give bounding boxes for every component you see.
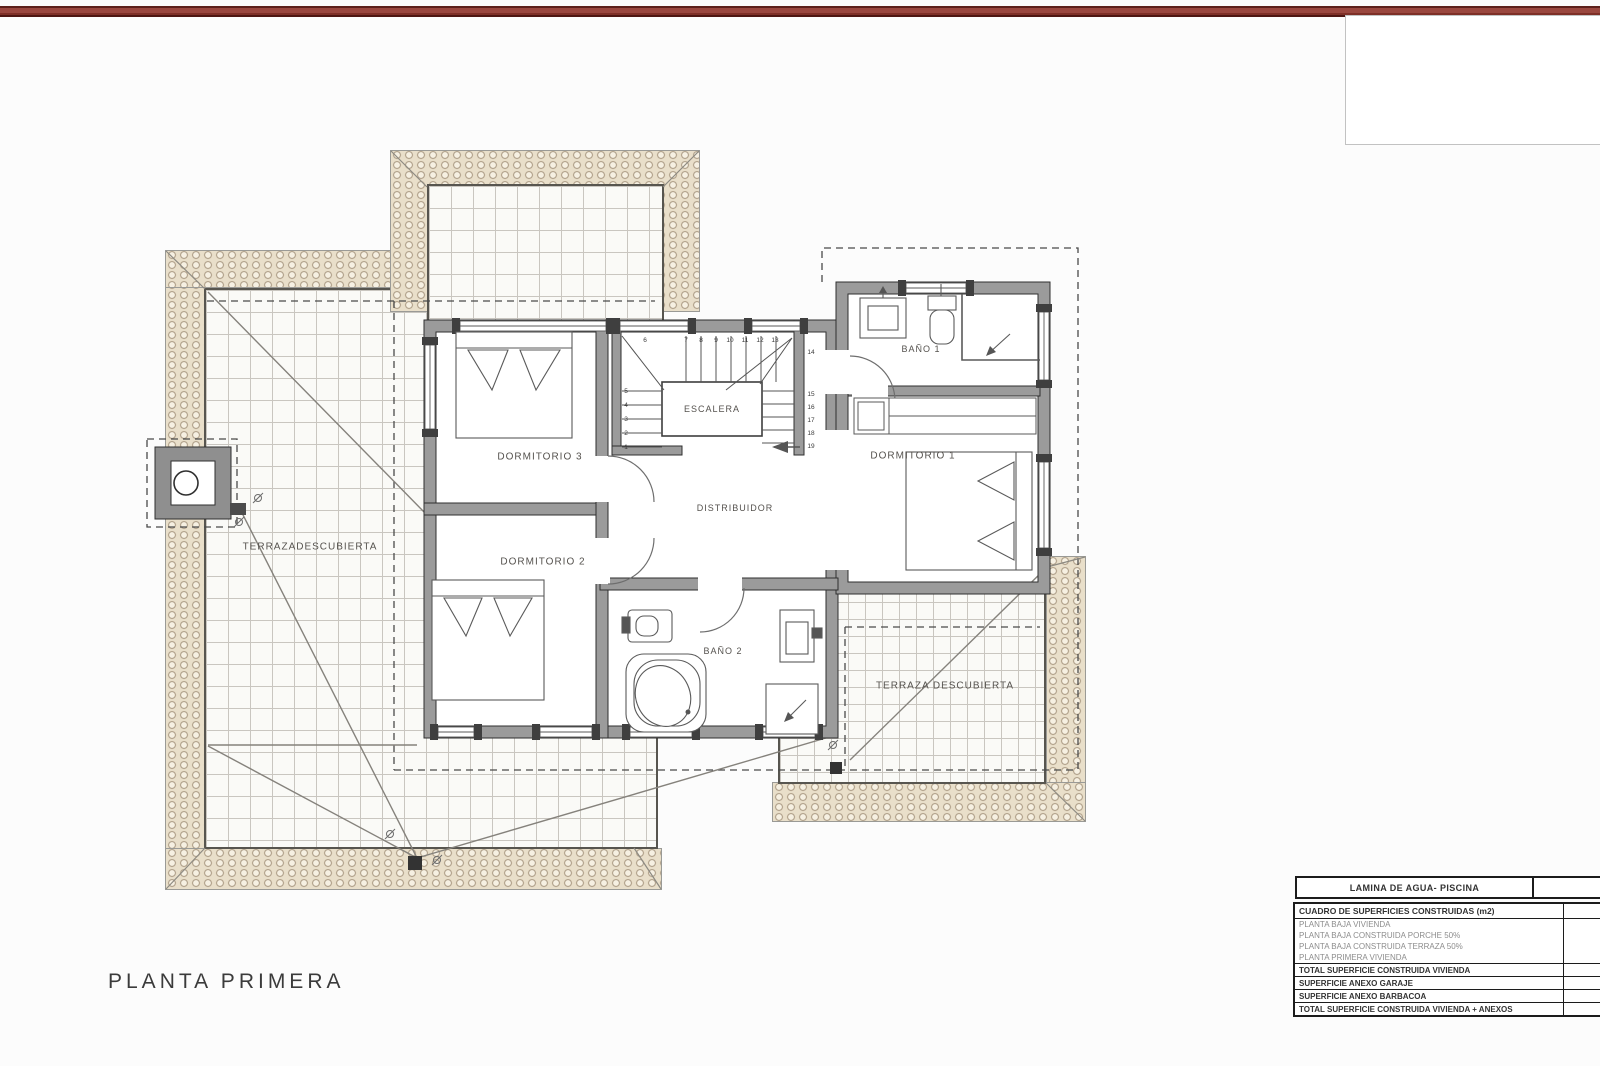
superficies-row: PLANTA BAJA CONSTRUIDA TERRAZA 50% <box>1295 941 1600 952</box>
lamina-value-cell <box>1534 878 1600 897</box>
closet-dormitorio-1 <box>854 398 1036 434</box>
svg-text:15: 15 <box>807 391 815 398</box>
svg-text:14: 14 <box>807 349 815 356</box>
superficies-row-value <box>1564 964 1600 976</box>
bed-dormitorio-1 <box>906 452 1032 570</box>
sheet-title: PLANTA PRIMERA <box>108 970 345 994</box>
superficies-table: CUADRO DE SUPERFICIES CONSTRUIDAS (m2) P… <box>1293 902 1600 1017</box>
label-bano-1: BAÑO 1 <box>901 344 940 354</box>
superficies-header-label: CUADRO DE SUPERFICIES CONSTRUIDAS (m2) <box>1295 904 1564 918</box>
roof-ridge-lines <box>208 292 1046 858</box>
bed-dormitorio-3 <box>456 332 572 438</box>
superficies-row-label: PLANTA BAJA CONSTRUIDA PORCHE 50% <box>1295 930 1564 941</box>
superficies-row: PLANTA PRIMERA VIVIENDA <box>1295 952 1600 963</box>
superficies-row-value <box>1564 941 1600 952</box>
superficies-row: PLANTA BAJA VIVIENDA <box>1295 919 1600 930</box>
svg-text:16: 16 <box>807 404 815 411</box>
label-dormitorio-3: DORMITORIO 3 <box>497 452 582 463</box>
svg-text:1: 1 <box>624 444 628 451</box>
stairs <box>622 336 800 453</box>
ridge-node-2 <box>830 762 842 774</box>
svg-text:8: 8 <box>699 337 703 344</box>
superficies-row: PLANTA BAJA CONSTRUIDA PORCHE 50% <box>1295 930 1600 941</box>
svg-text:6: 6 <box>643 337 647 344</box>
ridge-node <box>408 856 422 870</box>
svg-text:19: 19 <box>807 443 815 450</box>
svg-text:17: 17 <box>807 417 815 424</box>
superficies-header-row: CUADRO DE SUPERFICIES CONSTRUIDAS (m2) <box>1295 904 1600 919</box>
superficies-row: TOTAL SUPERFICIE CONSTRUIDA VIVIENDA <box>1295 963 1600 976</box>
superficies-row: SUPERFICIE ANEXO BARBACOA <box>1295 989 1600 1002</box>
label-bano-2: BAÑO 2 <box>703 646 742 656</box>
svg-text:7: 7 <box>684 337 688 344</box>
label-terraza-derecha: TERRAZA DESCUBIERTA <box>876 681 1014 692</box>
svg-text:13: 13 <box>771 337 779 344</box>
svg-text:11: 11 <box>742 337 749 344</box>
superficies-row-label: PLANTA BAJA CONSTRUIDA TERRAZA 50% <box>1295 941 1564 952</box>
label-dormitorio-2: DORMITORIO 2 <box>500 557 585 568</box>
page: { "plan_title": "PLANTA PRIMERA", "rooms… <box>0 0 1600 1066</box>
superficies-row-value <box>1564 930 1600 941</box>
lamina-table: LAMINA DE AGUA- PISCINA <box>1295 876 1600 899</box>
svg-text:10: 10 <box>726 337 734 344</box>
superficies-row-value <box>1564 977 1600 989</box>
svg-text:5: 5 <box>624 388 628 395</box>
superficies-header-value <box>1564 904 1600 918</box>
label-dormitorio-1: DORMITORIO 1 <box>870 451 955 462</box>
svg-text:12: 12 <box>756 337 764 344</box>
bathroom-1-fixtures <box>860 284 1040 360</box>
label-escalera: ESCALERA <box>684 404 740 414</box>
svg-text:2: 2 <box>624 430 628 437</box>
superficies-row-label: TOTAL SUPERFICIE CONSTRUIDA VIVIENDA <box>1295 964 1564 976</box>
bed-dormitorio-2 <box>432 580 544 700</box>
svg-text:9: 9 <box>714 337 718 344</box>
svg-text:4: 4 <box>624 402 628 409</box>
superficies-row-label: PLANTA PRIMERA VIVIENDA <box>1295 952 1564 963</box>
chimney <box>155 447 246 519</box>
superficies-row: TOTAL SUPERFICIE CONSTRUIDA VIVIENDA + A… <box>1295 1002 1600 1015</box>
label-distribuidor: DISTRIBUIDOR <box>697 503 774 513</box>
svg-text:18: 18 <box>807 430 815 437</box>
superficies-row: SUPERFICIE ANEXO GARAJE <box>1295 976 1600 989</box>
superficies-row-label: PLANTA BAJA VIVIENDA <box>1295 919 1564 930</box>
svg-text:3: 3 <box>624 416 628 423</box>
lamina-title-cell: LAMINA DE AGUA- PISCINA <box>1297 878 1534 897</box>
superficies-row-label: SUPERFICIE ANEXO BARBACOA <box>1295 990 1564 1002</box>
superficies-row-value <box>1564 990 1600 1002</box>
bathroom-2-fixtures <box>622 610 822 735</box>
superficies-row-value <box>1564 952 1600 963</box>
superficies-row-value <box>1564 1003 1600 1015</box>
superficies-row-value <box>1564 919 1600 930</box>
superficies-row-label: TOTAL SUPERFICIE CONSTRUIDA VIVIENDA + A… <box>1295 1003 1564 1015</box>
superficies-row-label: SUPERFICIE ANEXO GARAJE <box>1295 977 1564 989</box>
label-terraza-izquierda: TERRAZADESCUBIERTA <box>243 542 378 553</box>
